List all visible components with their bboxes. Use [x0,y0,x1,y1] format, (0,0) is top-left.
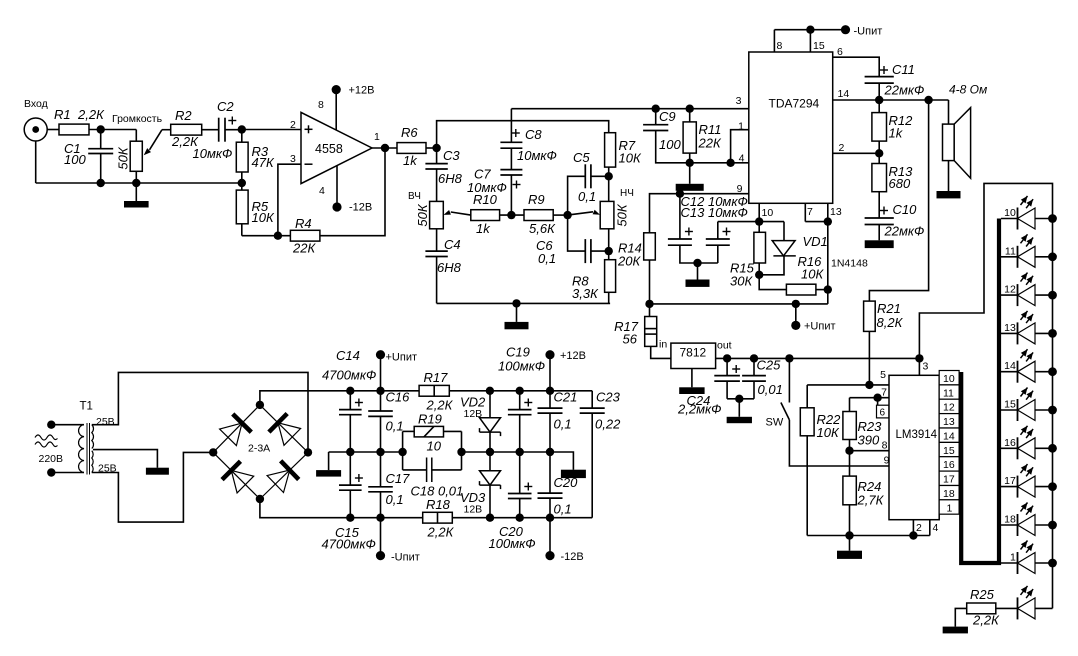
svg-text:1k: 1k [889,126,904,141]
svg-text:2-3А: 2-3А [248,443,270,455]
svg-text:0,1: 0,1 [386,492,404,507]
svg-text:12В: 12В [464,504,483,516]
svg-text:10мкФ: 10мкФ [467,180,507,195]
svg-text:C3: C3 [443,148,460,163]
svg-text:12: 12 [1004,284,1016,296]
svg-text:7: 7 [807,206,813,218]
svg-text:1k: 1k [403,153,418,168]
svg-text:11: 11 [1005,245,1016,257]
svg-text:10: 10 [943,373,955,385]
svg-text:4: 4 [933,522,939,534]
svg-text:LM3914: LM3914 [896,429,938,441]
svg-text:0,1: 0,1 [538,251,556,266]
svg-text:18: 18 [1004,514,1016,526]
svg-text:100мкФ: 100мкФ [498,359,545,374]
svg-text:16: 16 [1004,437,1016,449]
svg-text:17: 17 [1004,475,1016,487]
svg-text:2,2мкФ: 2,2мкФ [677,402,721,417]
svg-text:10мкФ: 10мкФ [193,146,233,161]
svg-text:17: 17 [943,474,955,486]
svg-text:15: 15 [943,445,955,457]
svg-text:8: 8 [318,99,324,111]
svg-text:0,1: 0,1 [554,417,572,432]
svg-text:2: 2 [290,119,296,131]
svg-text:Громкость: Громкость [112,113,163,125]
svg-text:C16: C16 [386,390,411,405]
svg-text:Вход: Вход [24,98,48,110]
svg-text:4558: 4558 [315,142,343,156]
svg-text:5,6К: 5,6К [529,221,556,236]
svg-text:ВЧ: ВЧ [408,191,421,202]
svg-text:3: 3 [923,361,929,373]
svg-text:13: 13 [943,416,955,428]
svg-text:-Uпит: -Uпит [854,26,883,38]
svg-text:0,1: 0,1 [386,419,404,434]
svg-text:6: 6 [880,408,886,419]
svg-text:R19: R19 [418,412,442,427]
svg-text:C20: C20 [554,475,579,490]
svg-text:0,01: 0,01 [758,382,783,397]
svg-text:14: 14 [943,430,955,442]
svg-text:-12В: -12В [349,202,372,214]
svg-text:2,7К: 2,7К [857,493,885,508]
svg-text:4: 4 [739,153,745,165]
svg-text:0,1: 0,1 [578,189,596,204]
svg-text:R4: R4 [295,216,312,231]
svg-text:8,2К: 8,2К [877,315,904,330]
svg-text:R9: R9 [528,192,545,207]
svg-text:10мкФ: 10мкФ [517,148,557,163]
svg-text:R18: R18 [426,497,451,512]
svg-text:8: 8 [777,40,783,52]
svg-text:50К: 50К [116,146,131,169]
svg-text:9: 9 [884,455,890,467]
svg-text:10К: 10К [801,267,824,282]
svg-text:100мкФ: 100мкФ [489,536,536,551]
svg-text:2: 2 [916,522,922,534]
svg-text:3: 3 [290,153,296,165]
svg-text:0,22: 0,22 [595,417,621,432]
svg-text:10: 10 [762,207,774,219]
svg-text:C25: C25 [757,358,782,373]
svg-text:10К: 10К [619,151,642,166]
svg-text:390: 390 [858,433,880,448]
svg-text:2: 2 [839,142,845,154]
svg-text:2,2К: 2,2К [427,525,455,540]
svg-text:R1: R1 [54,107,71,122]
svg-text:22мкФ: 22мкФ [884,224,925,239]
svg-text:2,2К: 2,2К [972,613,1000,628]
svg-text:C19: C19 [506,345,530,360]
svg-text:13: 13 [1004,322,1016,334]
svg-text:11: 11 [943,387,954,399]
svg-text:680: 680 [889,176,911,191]
svg-text:VD1: VD1 [803,234,828,249]
svg-text:C5: C5 [573,150,590,165]
svg-text:C9: C9 [659,109,676,124]
svg-text:C14: C14 [336,348,360,363]
svg-text:50К: 50К [415,203,430,226]
svg-text:22мкФ: 22мкФ [884,83,925,98]
svg-text:7: 7 [881,387,887,399]
svg-text:in: in [659,339,667,351]
svg-text:100: 100 [659,137,681,152]
svg-text:1: 1 [947,502,953,514]
svg-text:C2: C2 [217,99,234,114]
svg-text:C13 10мкФ: C13 10мкФ [681,205,748,220]
svg-text:2,2К: 2,2К [77,107,105,122]
svg-text:14: 14 [838,88,850,100]
svg-text:13: 13 [830,206,842,218]
svg-text:30К: 30К [730,274,753,289]
svg-text:5: 5 [880,369,886,381]
svg-text:SW: SW [766,417,784,429]
svg-text:18: 18 [943,488,955,500]
svg-text:4700мкФ: 4700мкФ [322,537,376,552]
svg-text:C17: C17 [386,471,411,486]
svg-text:-Uпит: -Uпит [391,552,420,564]
svg-text:7812: 7812 [680,346,707,360]
svg-text:-12В: -12В [561,551,584,563]
svg-text:15: 15 [813,40,825,52]
svg-text:1N4148: 1N4148 [831,258,868,270]
svg-text:10К: 10К [252,210,275,225]
svg-text:R6: R6 [401,125,418,140]
svg-text:1: 1 [738,121,744,133]
svg-text:4700мкФ: 4700мкФ [322,368,376,383]
svg-text:TDA7294: TDA7294 [769,97,820,111]
svg-text:10К: 10К [817,425,840,440]
svg-text:1: 1 [374,131,380,143]
svg-text:10: 10 [1004,207,1016,219]
svg-text:8: 8 [882,440,888,452]
svg-text:+Uпит: +Uпит [804,321,836,333]
svg-text:R21: R21 [877,301,901,316]
svg-text:50К: 50К [615,203,630,226]
svg-text:220В: 220В [39,453,64,465]
svg-text:1: 1 [1010,552,1016,564]
svg-text:+12В: +12В [349,85,375,97]
svg-text:6: 6 [837,46,843,58]
svg-text:Т1: Т1 [80,401,93,413]
svg-text:1k: 1k [476,221,491,236]
svg-text:4-8 Ом: 4-8 Ом [949,83,987,97]
svg-text:4: 4 [319,185,325,197]
svg-text:12: 12 [943,402,955,414]
svg-text:R17: R17 [424,370,449,385]
svg-text:R2: R2 [175,108,192,123]
svg-text:+Uпит: +Uпит [386,352,418,364]
svg-text:6Н8: 6Н8 [437,260,462,275]
svg-text:C21: C21 [554,390,578,405]
svg-text:3,3К: 3,3К [572,286,599,301]
svg-text:20К: 20К [617,254,641,269]
svg-text:C23: C23 [596,390,621,405]
svg-text:10: 10 [427,439,442,454]
svg-text:НЧ: НЧ [620,188,634,199]
svg-text:22К: 22К [698,136,722,151]
svg-text:16: 16 [943,459,955,471]
svg-text:56: 56 [623,332,638,347]
svg-text:3: 3 [736,95,742,107]
svg-text:out: out [717,340,732,352]
svg-text:14: 14 [1004,360,1016,372]
svg-text:25В: 25В [96,416,115,428]
svg-text:2,2К: 2,2К [426,398,454,413]
svg-text:15: 15 [1004,399,1016,411]
svg-text:0,1: 0,1 [554,502,572,517]
svg-text:C8: C8 [525,127,542,142]
svg-text:C11: C11 [892,62,915,77]
svg-text:C10: C10 [893,202,918,217]
svg-text:100: 100 [64,152,86,167]
svg-text:R25: R25 [970,587,995,602]
svg-text:C4: C4 [444,237,461,252]
svg-text:6Н8: 6Н8 [438,171,463,186]
svg-text:+12В: +12В [560,350,586,362]
svg-text:22К: 22К [292,241,316,256]
svg-text:47К: 47К [252,155,275,170]
